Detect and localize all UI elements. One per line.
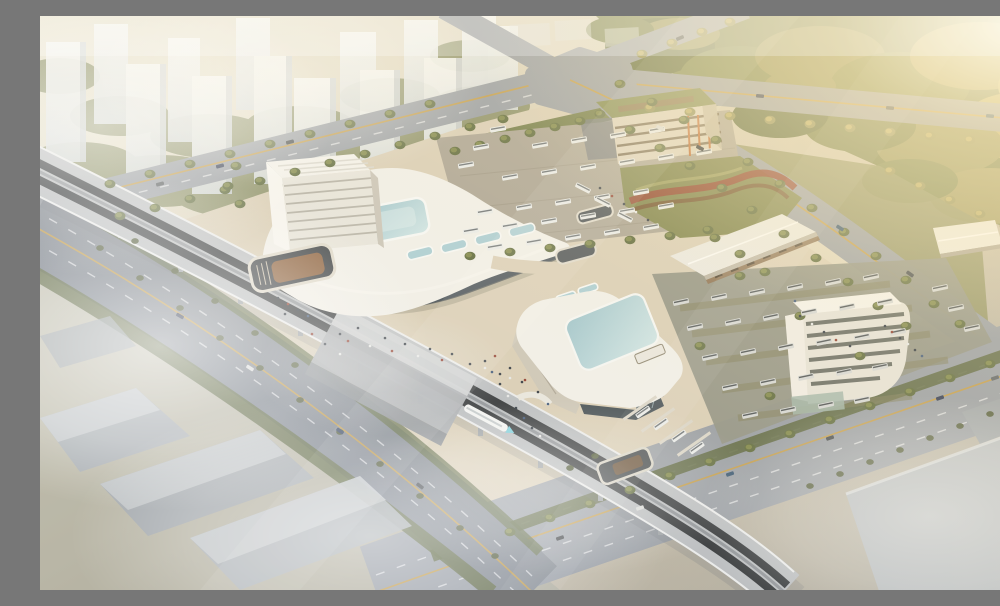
sun-glare (40, 16, 1000, 590)
aerial-rendering: Aerial rendering of a modern intermodal … (40, 16, 1000, 590)
